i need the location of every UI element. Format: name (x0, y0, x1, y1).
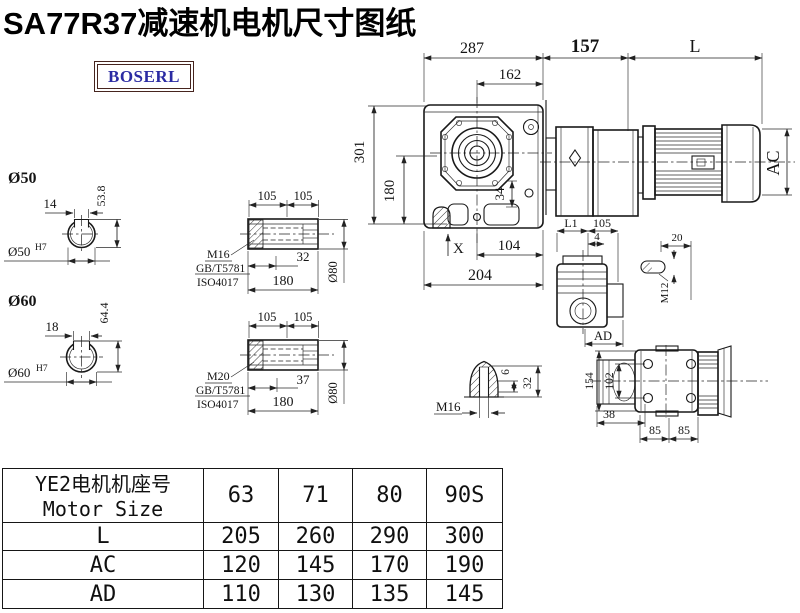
dim-105b: 105 (294, 189, 313, 203)
value-AD-80: 135 (353, 580, 427, 609)
technical-drawing: 287 162 157 L (0, 0, 800, 466)
label-X: X (453, 241, 464, 257)
solid-shaft-60-section: Ø60 18 64.4 Ø60 H7 (4, 293, 122, 386)
std-iso4017-a: ISO4017 (197, 277, 239, 289)
motor-size-header-cell: YE2电机机座号 Motor Size (3, 469, 204, 523)
dim-53-8: 53.8 (94, 186, 108, 207)
dim-105d: 105 (294, 310, 313, 324)
std-gbt5781-a: GB/T5781 (196, 263, 245, 275)
dim-32-depth: 32 (297, 249, 310, 264)
label-bore50-fit: H7 (35, 243, 47, 253)
label-bore50: Ø50 (8, 244, 30, 259)
dimension-table: YE2电机机座号 Motor Size 63 71 80 90S L 205 2… (2, 468, 503, 609)
dim-105-side: 105 (593, 216, 611, 230)
gearbox-top-view: 154 102 38 85 85 (584, 345, 768, 443)
value-L-90s: 300 (427, 523, 503, 551)
thread-callout-m20: M20 (207, 369, 230, 383)
dim-154: 154 (584, 372, 596, 390)
table-row-AD: AD 110 130 135 145 (3, 580, 503, 609)
gearbox-front-view: 301 180 34 X 104 204 (352, 97, 552, 290)
dim-20: 20 (672, 232, 684, 244)
dim-180-left: 180 (382, 180, 398, 203)
table-row-L: L 205 260 290 300 (3, 523, 503, 551)
motor-size-header-cn: YE2电机机座号 (3, 471, 203, 497)
plug-detail: M16 6 32 (434, 362, 542, 419)
value-AC-63: 120 (204, 551, 279, 580)
dim-dia80b: Ø80 (326, 382, 340, 404)
value-L-80: 290 (353, 523, 427, 551)
label-bore60: Ø60 (8, 365, 30, 380)
dim-AC: AC (763, 150, 783, 175)
value-AC-90s: 190 (427, 551, 503, 580)
thread-callout-m16: M16 (207, 247, 230, 261)
dim-104: 104 (498, 238, 521, 254)
drawing-sheet: SA77R37减速机电机尺寸图纸 BOSERL 287 162 157 (0, 0, 800, 613)
dim-301: 301 (352, 141, 368, 164)
value-L-71: 260 (279, 523, 353, 551)
std-gbt5781-b: GB/T5781 (196, 385, 245, 397)
dim-102: 102 (604, 372, 616, 390)
hollow-shaft-detail-m20: 105 105 M20 GB/T5781 ISO4017 37 180 Ø80 (195, 310, 348, 415)
table-row-AC: AC 120 145 170 190 (3, 551, 503, 580)
row-label-L: L (3, 523, 204, 551)
dim-180a: 180 (273, 274, 294, 289)
size-col-80: 80 (353, 469, 427, 523)
value-AD-90s: 145 (427, 580, 503, 609)
thread-m16-plug: M16 (436, 399, 461, 414)
output-shaft-side-view: L1 105 4 AD (557, 216, 623, 347)
motor-size-header-en: Motor Size (3, 497, 203, 521)
motor-side-view: AC (540, 100, 795, 216)
size-col-90s: 90S (427, 469, 503, 523)
value-L-63: 205 (204, 523, 279, 551)
std-iso4017-b: ISO4017 (197, 399, 239, 411)
dim-34: 34 (492, 187, 507, 201)
label-dia60: Ø60 (8, 293, 36, 310)
size-col-71: 71 (279, 469, 353, 523)
dim-85a: 85 (649, 423, 661, 437)
dim-key18: 18 (46, 319, 59, 334)
solid-shaft-50-section: Ø50 14 53.8 Ø50 H7 (4, 170, 121, 265)
dim-key14: 14 (44, 196, 58, 211)
hollow-shaft-detail-m16: 105 105 M16 GB/T5781 ISO4017 32 180 Ø80 (195, 189, 348, 294)
dim-4: 4 (594, 231, 600, 243)
dim-37-depth: 37 (297, 372, 311, 387)
value-AC-80: 170 (353, 551, 427, 580)
table-header-row: YE2电机机座号 Motor Size 63 71 80 90S (3, 469, 503, 523)
key-detail: 20 M12 (641, 232, 691, 303)
dim-AD: AD (594, 329, 612, 343)
dim-64-4: 64.4 (97, 303, 111, 324)
dim-85b: 85 (678, 423, 690, 437)
dim-38: 38 (603, 407, 615, 421)
dim-204: 204 (468, 267, 492, 284)
dim-180b: 180 (273, 395, 294, 410)
dim-32-plug: 32 (520, 377, 534, 389)
dim-105c: 105 (258, 310, 277, 324)
dim-L: L (690, 36, 701, 56)
thread-m12: M12 (659, 283, 671, 304)
dim-162: 162 (499, 67, 522, 83)
dim-L1: L1 (564, 216, 577, 230)
dim-287: 287 (460, 40, 484, 57)
dim-157: 157 (571, 36, 600, 57)
row-label-AC: AC (3, 551, 204, 580)
value-AC-71: 145 (279, 551, 353, 580)
value-AD-71: 130 (279, 580, 353, 609)
dim-105a: 105 (258, 189, 277, 203)
dim-6: 6 (500, 369, 512, 375)
row-label-AD: AD (3, 580, 204, 609)
label-bore60-fit: H7 (36, 364, 48, 374)
size-col-63: 63 (204, 469, 279, 523)
value-AD-63: 110 (204, 580, 279, 609)
dim-dia80a: Ø80 (326, 261, 340, 283)
label-dia50: Ø50 (8, 170, 36, 187)
